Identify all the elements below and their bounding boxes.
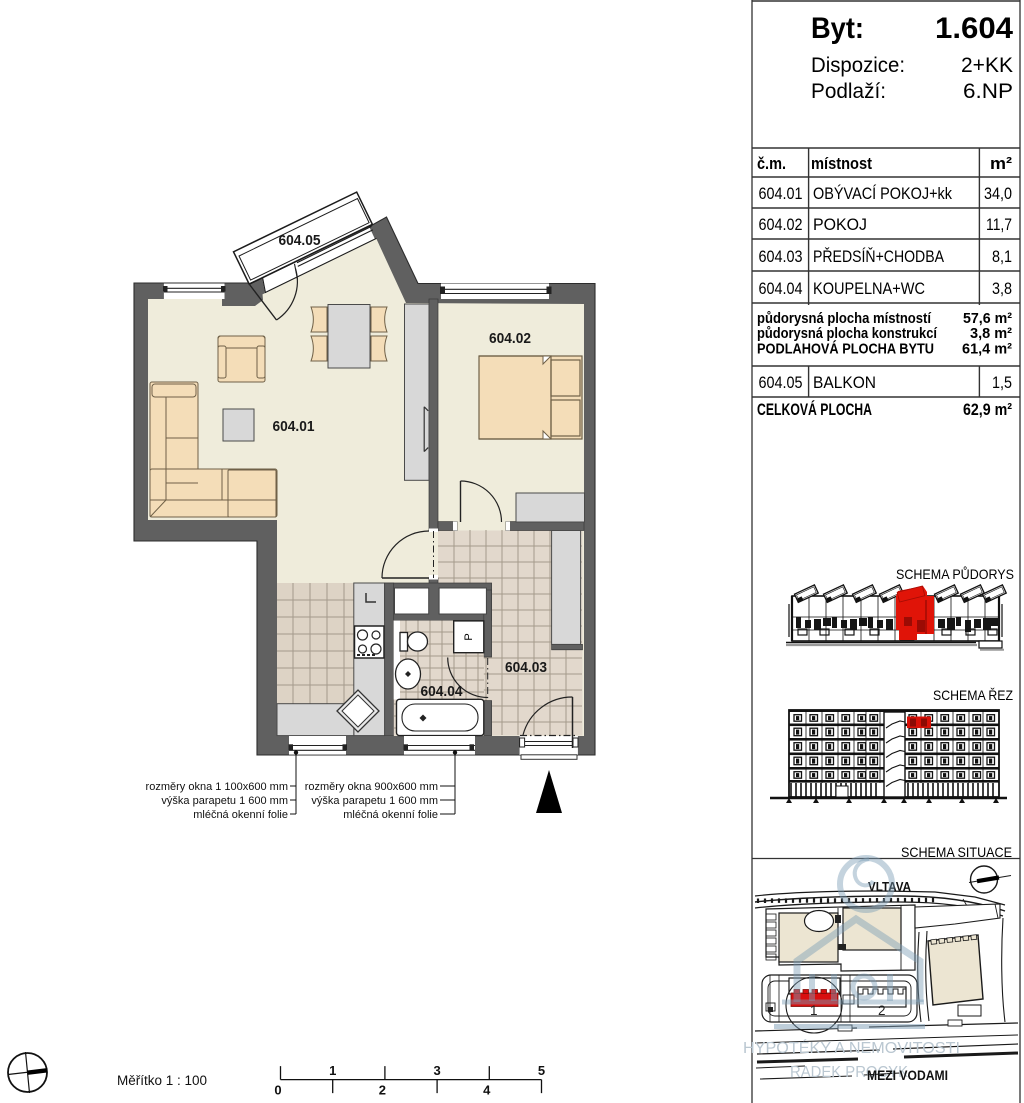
svg-text:604.04: 604.04	[759, 280, 803, 298]
svg-text:11,7: 11,7	[986, 216, 1012, 234]
svg-text:1,5: 1,5	[992, 374, 1012, 392]
svg-text:62,9 m²: 62,9 m²	[963, 401, 1012, 419]
svg-text:3,8 m²: 3,8 m²	[970, 325, 1012, 342]
svg-text:604.01: 604.01	[759, 185, 803, 203]
svg-text:Podlaží:: Podlaží:	[811, 80, 886, 103]
svg-text:mléčná okenní folie: mléčná okenní folie	[193, 809, 288, 821]
svg-text:PODLAHOVÁ PLOCHA BYTU: PODLAHOVÁ PLOCHA BYTU	[757, 341, 934, 358]
svg-text:P: P	[463, 633, 475, 640]
svg-text:4: 4	[483, 1083, 491, 1098]
svg-text:mléčná okenní folie: mléčná okenní folie	[343, 809, 438, 821]
svg-text:6.NP: 6.NP	[963, 80, 1013, 103]
svg-text:výška parapetu 1 600 mm: výška parapetu 1 600 mm	[311, 795, 438, 807]
svg-text:HYPOTÉKY A NEMOVITOSTI: HYPOTÉKY A NEMOVITOSTI	[743, 1040, 960, 1057]
svg-text:PŘEDSÍŇ+CHODBA: PŘEDSÍŇ+CHODBA	[813, 247, 944, 266]
svg-text:604.01: 604.01	[273, 419, 315, 435]
svg-text:SCHEMA ŘEZ: SCHEMA ŘEZ	[933, 687, 1013, 703]
svg-text:1: 1	[329, 1063, 336, 1078]
svg-text:604.03: 604.03	[759, 248, 803, 266]
svg-text:KOUPELNA+WC: KOUPELNA+WC	[813, 280, 925, 298]
svg-text:Měřítko 1 : 100: Měřítko 1 : 100	[117, 1073, 207, 1088]
svg-text:604.04: 604.04	[421, 684, 463, 700]
svg-text:61,4 m²: 61,4 m²	[962, 341, 1012, 358]
svg-text:604.03: 604.03	[505, 660, 547, 676]
svg-text:1.604: 1.604	[935, 12, 1013, 45]
svg-text:2: 2	[878, 1003, 886, 1018]
svg-text:604.05: 604.05	[759, 374, 803, 392]
svg-text:604.02: 604.02	[759, 216, 803, 234]
svg-text:rozměry okna 1 100x600 mm: rozměry okna 1 100x600 mm	[146, 781, 288, 793]
svg-text:místnost: místnost	[811, 155, 872, 173]
svg-text:2: 2	[379, 1083, 386, 1098]
svg-text:2+KK: 2+KK	[961, 54, 1013, 77]
svg-text:č.m.: č.m.	[757, 155, 786, 173]
svg-text:SCHEMA PŮDORYS: SCHEMA PŮDORYS	[896, 565, 1014, 582]
svg-text:0: 0	[274, 1083, 281, 1098]
svg-text:604.02: 604.02	[489, 331, 531, 347]
svg-text:Byt:: Byt:	[811, 12, 864, 45]
svg-text:půdorysná plocha konstrukcí: půdorysná plocha konstrukcí	[757, 325, 938, 342]
svg-text:1: 1	[810, 1003, 818, 1018]
svg-text:604.05: 604.05	[279, 233, 321, 249]
svg-text:8,1: 8,1	[992, 248, 1012, 266]
svg-text:3,8: 3,8	[992, 280, 1012, 298]
svg-text:34,0: 34,0	[984, 185, 1012, 203]
svg-text:OBÝVACÍ POKOJ+kk: OBÝVACÍ POKOJ+kk	[813, 184, 953, 203]
svg-text:Dispozice:: Dispozice:	[811, 54, 905, 77]
svg-text:BALKON: BALKON	[813, 374, 876, 392]
svg-text:m²: m²	[990, 155, 1013, 173]
svg-text:CELKOVÁ PLOCHA: CELKOVÁ PLOCHA	[757, 400, 872, 419]
svg-text:POKOJ: POKOJ	[813, 216, 867, 234]
svg-text:SCHEMA SITUACE: SCHEMA SITUACE	[901, 844, 1012, 860]
svg-text:3: 3	[433, 1063, 440, 1078]
svg-text:rozměry okna 900x600 mm: rozměry okna 900x600 mm	[305, 781, 438, 793]
svg-text:výška parapetu 1 600 mm: výška parapetu 1 600 mm	[161, 795, 288, 807]
svg-text:MEZI VODAMI: MEZI VODAMI	[867, 1067, 948, 1083]
svg-text:5: 5	[538, 1063, 545, 1078]
